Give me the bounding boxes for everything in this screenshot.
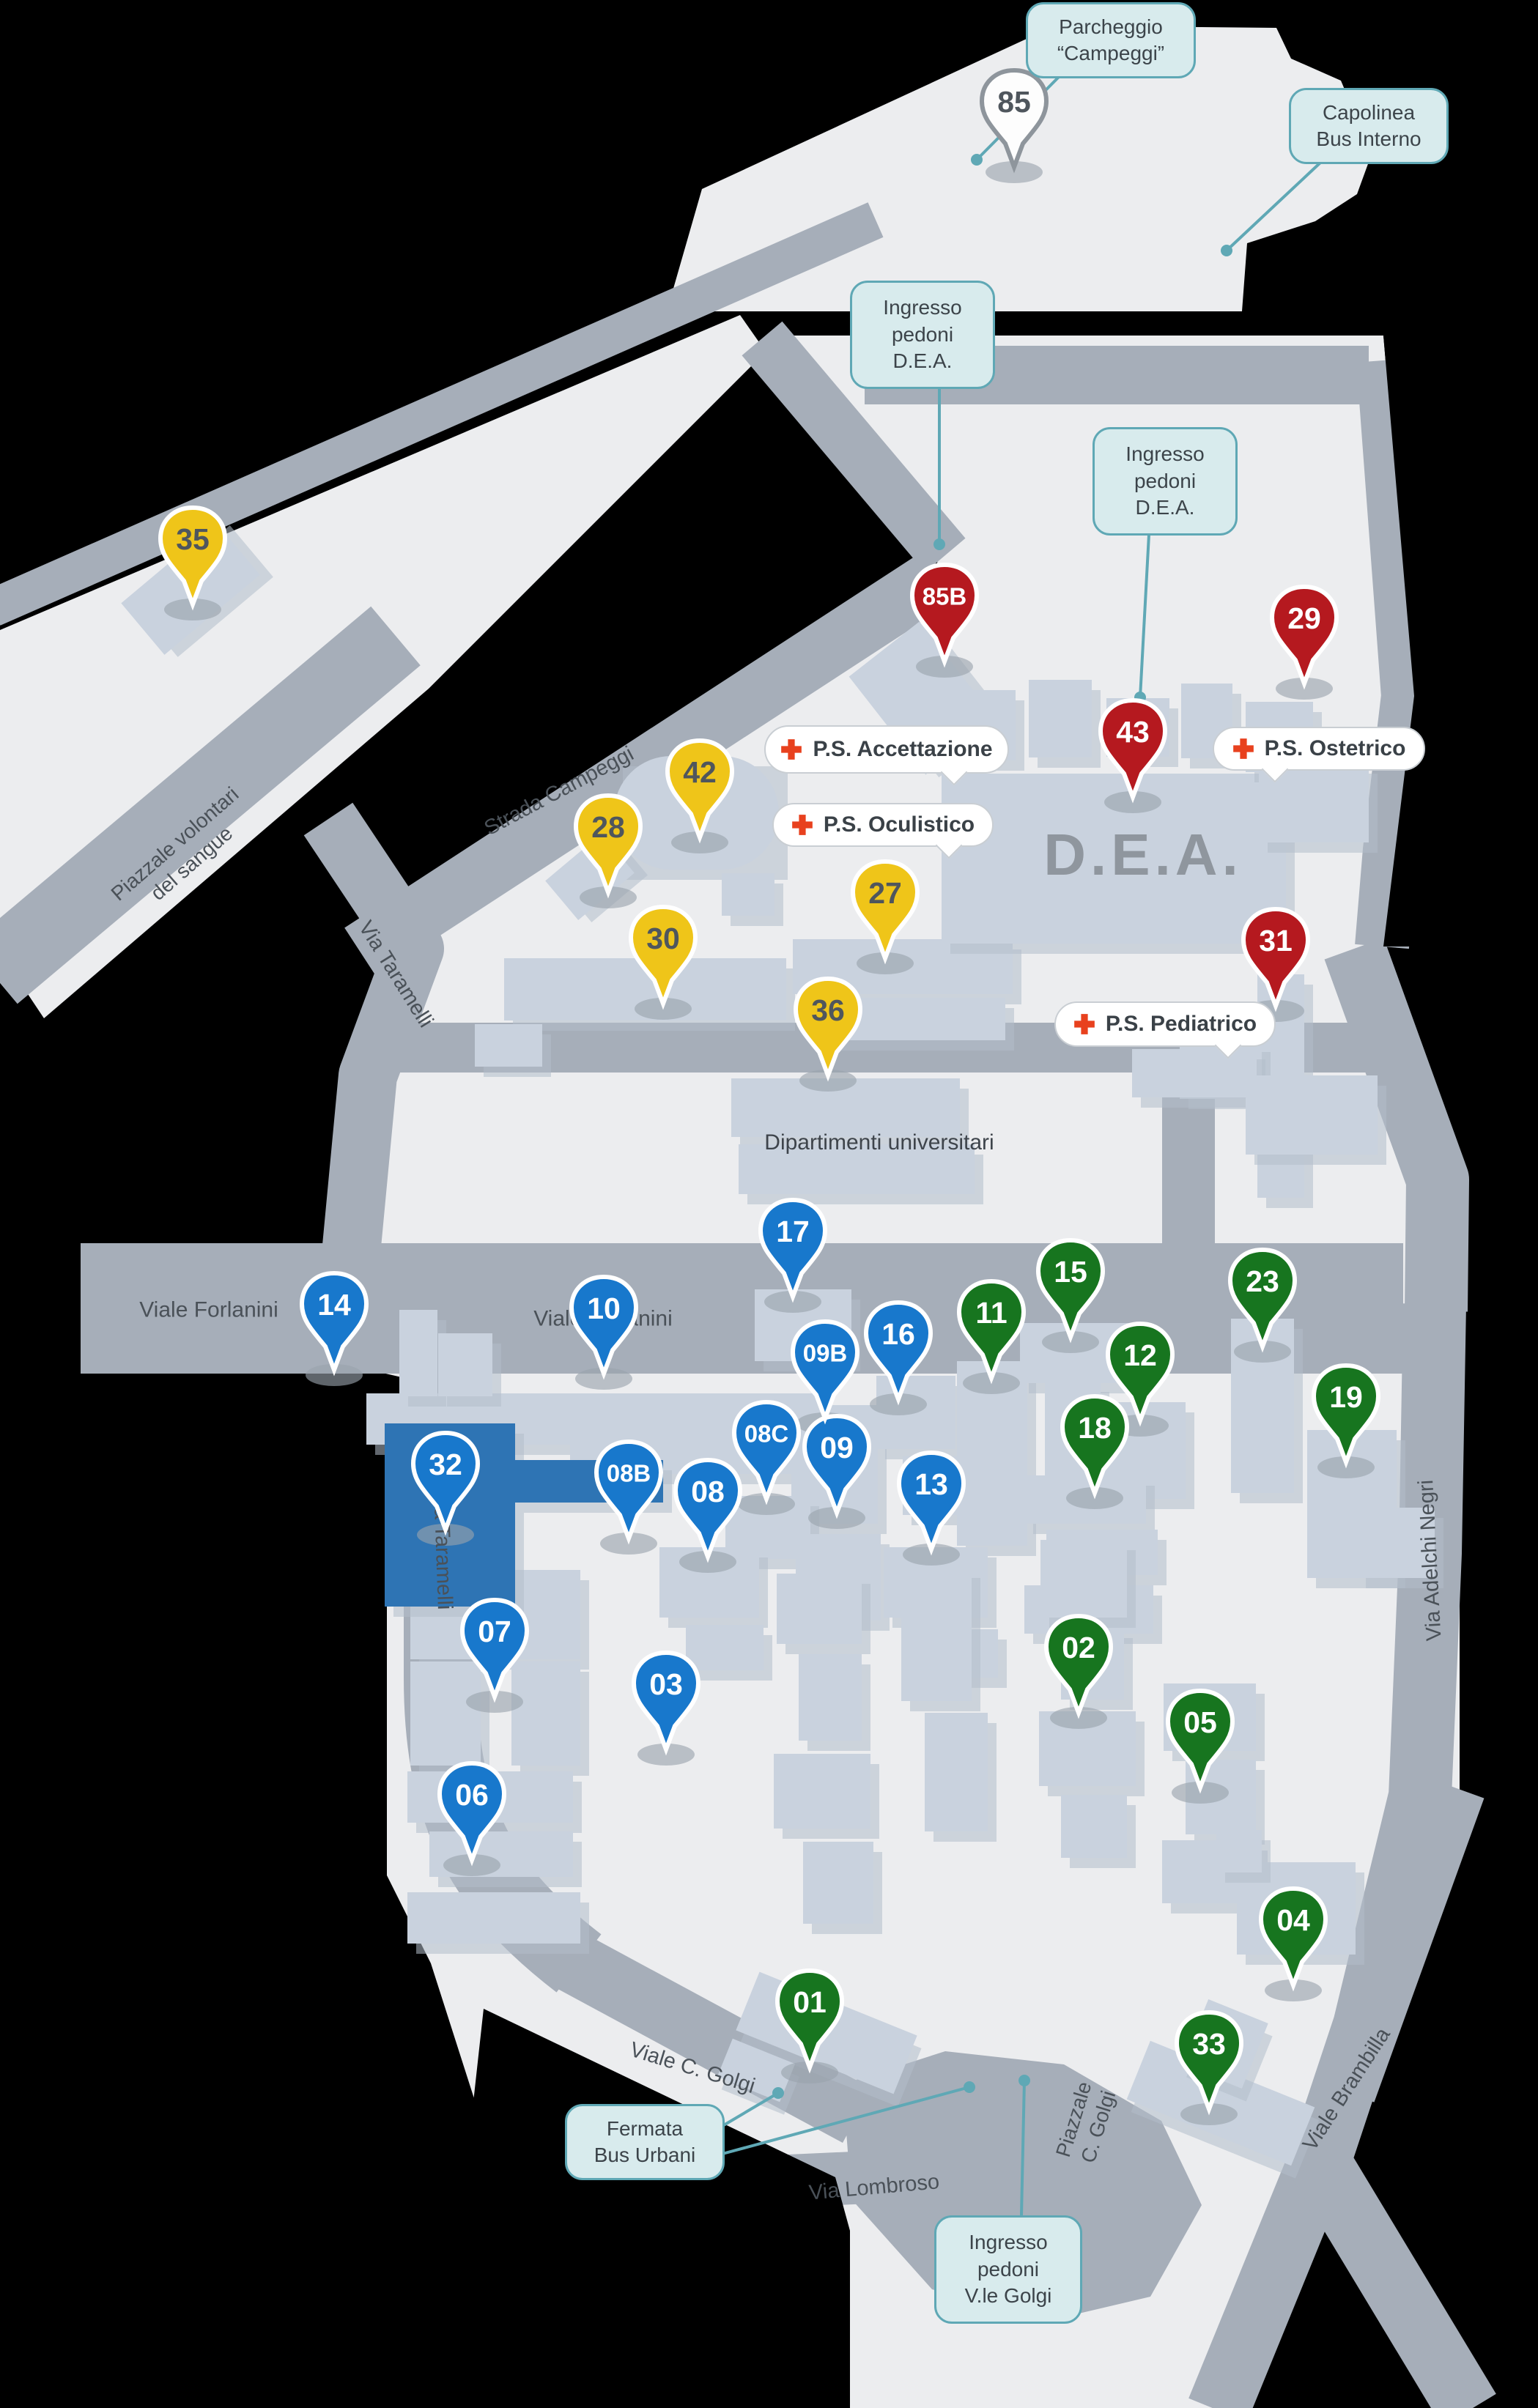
- pin-number-label: 15: [1054, 1255, 1087, 1289]
- map-pin-43[interactable]: 43: [1096, 697, 1169, 807]
- map-pin-09B[interactable]: 09B: [788, 1319, 862, 1429]
- pin-number-label: 08: [691, 1475, 725, 1508]
- pin-number-label: 09B: [803, 1340, 848, 1367]
- pin-number-label: 30: [646, 922, 680, 955]
- map-pin-03[interactable]: 03: [629, 1650, 703, 1760]
- pin-number-label: 08B: [607, 1460, 651, 1487]
- red-cross-icon: [791, 814, 813, 836]
- map-pin-10[interactable]: 10: [567, 1274, 640, 1384]
- pin-number-label: 23: [1246, 1264, 1279, 1298]
- pin-number-label: 29: [1287, 601, 1321, 635]
- map-pin-30[interactable]: 30: [626, 904, 700, 1014]
- pin-number-label: 16: [881, 1317, 915, 1351]
- map-pin-28[interactable]: 28: [572, 793, 645, 903]
- pin-number-label: 27: [868, 876, 902, 910]
- map-pin-08B[interactable]: 08B: [592, 1439, 665, 1549]
- pin-number-label: 13: [914, 1467, 948, 1501]
- callout-parcheggio-campeggi: Parcheggio“Campeggi”: [1026, 2, 1196, 78]
- ps-accettazione-label: P.S. Accettazione: [764, 725, 1009, 774]
- map-pin-09[interactable]: 09: [800, 1413, 873, 1523]
- ps-pediatrico-label: P.S. Pediatrico: [1054, 1001, 1276, 1047]
- map-pin-23[interactable]: 23: [1226, 1247, 1299, 1357]
- ps-label-text: P.S. Accettazione: [813, 737, 992, 762]
- map-pin-14[interactable]: 14: [297, 1270, 371, 1380]
- ps-label-text: P.S. Pediatrico: [1106, 1012, 1257, 1037]
- pin-number-label: 06: [455, 1778, 489, 1812]
- pin-number-label: 17: [776, 1215, 810, 1248]
- dea-label: D.E.A.: [1043, 821, 1243, 889]
- pin-number-label: 28: [591, 810, 625, 844]
- pin-number-label: 07: [478, 1615, 511, 1648]
- map-pin-04[interactable]: 04: [1257, 1886, 1330, 1996]
- pin-number-label: 04: [1276, 1903, 1310, 1937]
- ps-ostetrico-label: P.S. Ostetrico: [1213, 727, 1425, 771]
- red-cross-icon: [1073, 1013, 1095, 1035]
- pin-number-label: 36: [811, 993, 845, 1027]
- pin-number-label: 18: [1078, 1411, 1112, 1445]
- pin-number-label: 33: [1192, 2027, 1226, 2061]
- map-pin-11[interactable]: 11: [955, 1278, 1028, 1388]
- map-pin-35[interactable]: 35: [156, 505, 229, 615]
- map-pin-29[interactable]: 29: [1268, 584, 1341, 694]
- pin-number-label: 85B: [923, 583, 967, 610]
- pin-number-label: 11: [975, 1296, 1007, 1330]
- pin-number-label: 10: [587, 1292, 621, 1325]
- map-pin-15[interactable]: 15: [1034, 1237, 1107, 1347]
- ps-label-text: P.S. Oculistico: [824, 812, 975, 837]
- pin-number-label: 85: [997, 85, 1031, 119]
- pin-number-label: 09: [820, 1431, 854, 1464]
- map-pin-06[interactable]: 06: [435, 1760, 509, 1870]
- map-pin-36[interactable]: 36: [791, 976, 865, 1086]
- pin-number-label: 31: [1259, 924, 1293, 957]
- map-pin-05[interactable]: 05: [1164, 1688, 1237, 1798]
- callout-ingresso-pedoni-vle-golgi: IngressopedoniV.le Golgi: [934, 2215, 1082, 2324]
- callout-text: CapolineaBus Interno: [1316, 100, 1421, 153]
- ps-oculistico-label: P.S. Oculistico: [772, 803, 994, 847]
- map-pin-85B[interactable]: 85B: [908, 562, 981, 672]
- pin-number-label: 12: [1123, 1338, 1157, 1372]
- map-pin-02[interactable]: 02: [1042, 1613, 1115, 1723]
- pin-number-label: 01: [793, 1985, 827, 2019]
- hospital-campus-map: 01 02 03 04 05 06 07 08 08B 08C 09 09B 1…: [0, 0, 1538, 2408]
- pin-number-label: 14: [317, 1288, 351, 1322]
- pin-number-label: 02: [1062, 1631, 1095, 1664]
- callout-text: IngressopedoniV.le Golgi: [965, 2229, 1052, 2309]
- callout-capolinea-bus-interno: CapolineaBus Interno: [1289, 88, 1449, 164]
- map-pin-17[interactable]: 17: [756, 1197, 829, 1307]
- map-pin-18[interactable]: 18: [1058, 1393, 1131, 1503]
- pin-number-label: 03: [649, 1667, 683, 1701]
- dipartimenti-label: Dipartimenti universitari: [764, 1130, 994, 1155]
- map-pin-13[interactable]: 13: [895, 1450, 968, 1560]
- callout-ingresso-pedoni-dea-1: IngressopedoniD.E.A.: [850, 281, 995, 389]
- map-pin-01[interactable]: 01: [773, 1968, 846, 2078]
- callout-text: IngressopedoniD.E.A.: [1125, 441, 1204, 521]
- map-pin-07[interactable]: 07: [458, 1597, 531, 1707]
- map-pin-32[interactable]: 32: [409, 1430, 482, 1540]
- callout-ingresso-pedoni-dea-2: IngressopedoniD.E.A.: [1093, 427, 1238, 536]
- street-label-viale-forlanini-1: Viale Forlanini: [139, 1296, 278, 1324]
- pin-number-label: 35: [176, 522, 210, 556]
- pin-number-label: 32: [429, 1448, 462, 1481]
- map-pin-16[interactable]: 16: [862, 1300, 935, 1409]
- map-pin-85[interactable]: 85: [977, 67, 1051, 177]
- ps-label-text: P.S. Ostetrico: [1265, 736, 1406, 761]
- pin-number-label: 42: [683, 755, 717, 789]
- map-pin-33[interactable]: 33: [1172, 2009, 1246, 2119]
- map-pin-31[interactable]: 31: [1239, 906, 1312, 1016]
- callout-text: Parcheggio“Campeggi”: [1057, 14, 1164, 67]
- pin-number-label: 43: [1116, 715, 1150, 749]
- map-pin-27[interactable]: 27: [849, 859, 922, 968]
- red-cross-icon: [780, 738, 802, 760]
- map-pin-42[interactable]: 42: [663, 738, 736, 848]
- callout-fermata-bus-urbani: FermataBus Urbani: [565, 2104, 725, 2180]
- pin-number-label: 05: [1183, 1705, 1217, 1739]
- map-pin-19[interactable]: 19: [1309, 1363, 1383, 1472]
- callout-text: IngressopedoniD.E.A.: [883, 294, 961, 374]
- red-cross-icon: [1232, 738, 1254, 760]
- pin-number-label: 19: [1329, 1380, 1363, 1414]
- callout-text: FermataBus Urbani: [594, 2116, 696, 2169]
- pin-number-label: 08C: [744, 1420, 789, 1448]
